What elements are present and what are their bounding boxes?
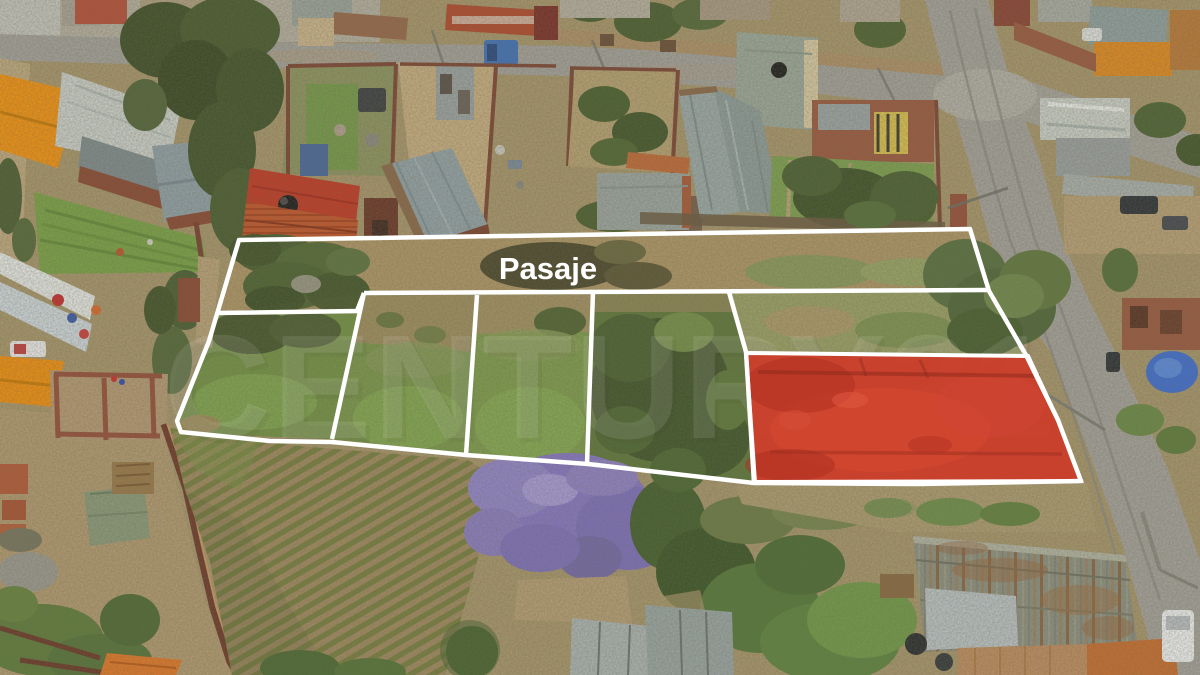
svg-text:Pasaje: Pasaje	[499, 251, 597, 286]
